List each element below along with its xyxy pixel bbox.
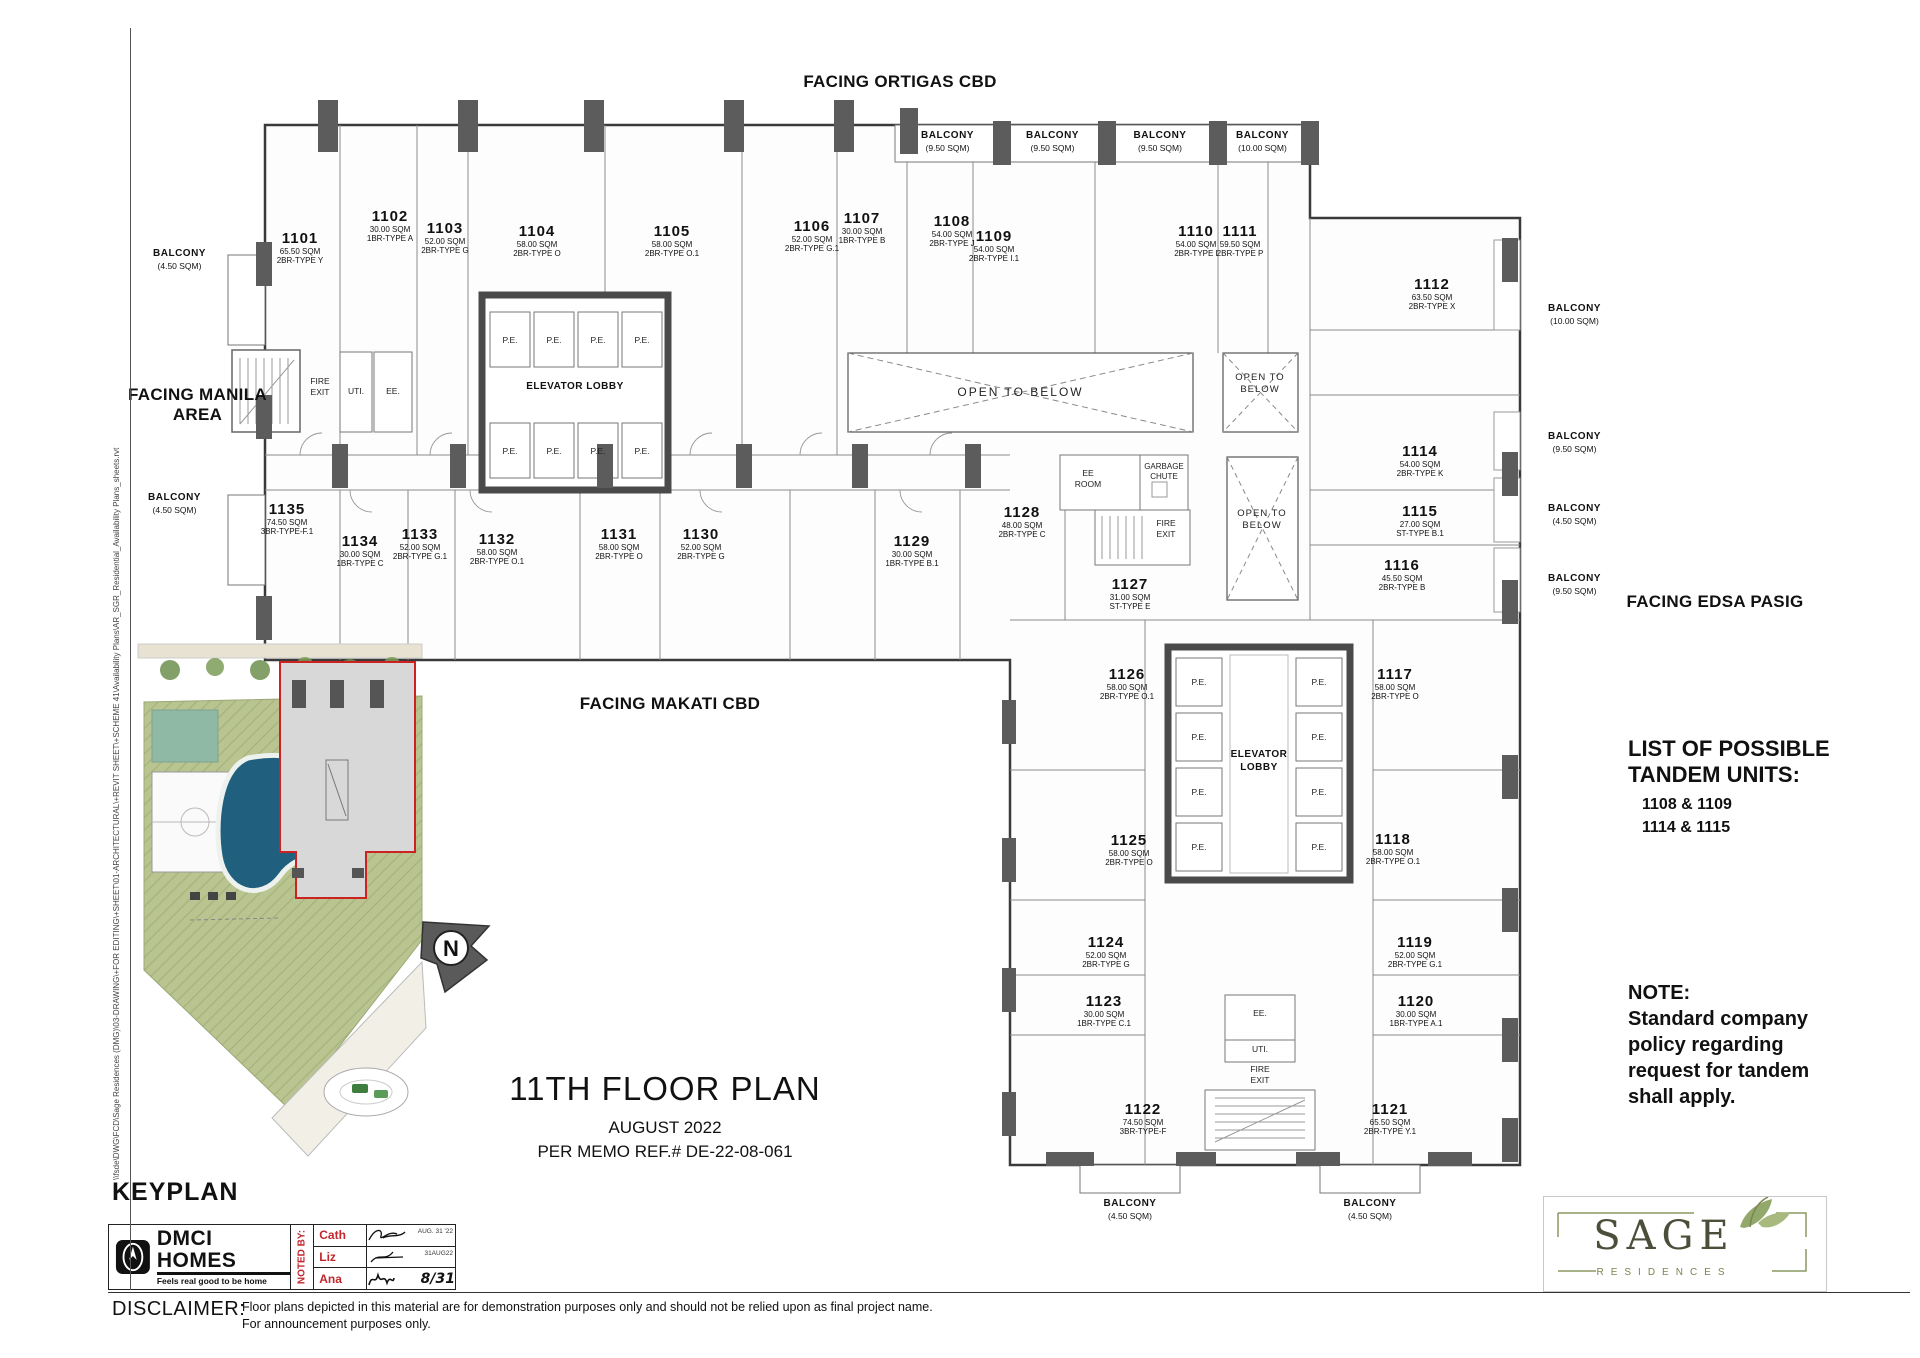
column-block [584,100,604,152]
dmci-wordmark: DMCI HOMES [157,1228,290,1275]
column-block [834,100,854,152]
unit-label-1126: 112658.00 SQM2BR-TYPE O.1 [1084,666,1170,702]
balcony-label: BALCONY(4.50 SQM) [1080,1198,1180,1221]
signature-icon [367,1226,407,1244]
sheet-border-line [130,28,131,1290]
unit-label-1116: 111645.50 SQM2BR-TYPE B [1359,557,1445,593]
open-to-below-label: OPEN TO BELOW [878,385,1163,399]
column-block [318,100,338,152]
facing-edsa-label: FACING EDSA PASIG [1600,592,1830,612]
balcony-label: BALCONY(4.50 SQM) [132,248,227,271]
column-block [965,444,981,488]
unit-label-1132: 113258.00 SQM2BR-TYPE O.1 [454,531,540,567]
balcony-label: BALCONY(10.00 SQM) [1527,303,1622,326]
column-block [1296,1152,1340,1166]
unit-label-1118: 111858.00 SQM2BR-TYPE O.1 [1350,831,1436,867]
uti-label: UTI. [1228,1044,1292,1055]
pe-cell-label: P.E. [1296,768,1342,816]
column-block [1502,1118,1518,1162]
tandem-units-list: LIST OF POSSIBLE TANDEM UNITS: 1108 & 11… [1628,736,1830,839]
balcony-label: BALCONY(9.50 SQM) [895,130,1000,153]
balcony-label: BALCONY(4.50 SQM) [1320,1198,1420,1221]
pe-cell-label: P.E. [578,312,618,367]
unit-label-1112: 111263.50 SQM2BR-TYPE X [1389,276,1475,312]
memo-ref: PER MEMO REF.# DE-22-08-061 [430,1142,900,1162]
column-block [1176,1152,1216,1166]
unit-label-1114: 111454.00 SQM2BR-TYPE K [1377,443,1463,479]
sage-logo: SAGE RESIDENCES [1543,1196,1827,1292]
open-to-below-label: OPEN TO BELOW [1232,508,1292,533]
column-block [1002,700,1016,744]
file-path-text: \\fsde\DWG\FCD\Sage Residences (DMG)\03-… [112,448,121,1180]
page-title: 11TH FLOOR PLAN [430,1070,900,1108]
note-block: NOTE: Standard company policy regarding … [1628,980,1809,1110]
column-block [1502,580,1518,624]
sage-wordmark: SAGE [1544,1213,1784,1259]
pe-cell-label: P.E. [1176,823,1222,871]
unit-label-1107: 110730.00 SQM1BR-TYPE B [819,210,905,246]
fire-exit-label: FIRE EXIT [1240,1064,1280,1085]
plan-date: AUGUST 2022 [430,1118,900,1138]
unit-label-1135: 113574.50 SQM3BR-TYPE-F.1 [244,501,330,537]
balcony-label: BALCONY(9.50 SQM) [1105,130,1215,153]
elevator-lobby-label: ELEVATOR LOBBY [500,380,650,393]
uti-label: UTI. [338,386,374,397]
unit-label-1109: 110954.00 SQM2BR-TYPE I.1 [951,228,1037,264]
column-block [1502,452,1518,496]
unit-label-1125: 112558.00 SQM2BR-TYPE O [1086,832,1172,868]
unit-label-1105: 110558.00 SQM2BR-TYPE O.1 [629,223,715,259]
signature-row: AUG. 31 '22 [367,1225,455,1247]
unit-label-1117: 111758.00 SQM2BR-TYPE O [1352,666,1438,702]
column-block [724,100,744,152]
noted-by-signatures: AUG. 31 '22 31AUG22 8/31 [367,1225,455,1289]
column-block [332,444,348,488]
disclaimer-text: Floor plans depicted in this material ar… [242,1299,1222,1333]
column-block [1046,1152,1094,1166]
dmci-logo-icon [115,1238,151,1276]
unit-label-1122: 112274.50 SQM3BR-TYPE-F [1100,1101,1186,1137]
column-block [1002,1092,1016,1136]
garbage-chute-label: GARBAGE CHUTE [1134,462,1194,482]
unit-label-1104: 110458.00 SQM2BR-TYPE O [494,223,580,259]
noted-by-names: Cath Liz Ana [314,1225,366,1289]
pe-cell-label: P.E. [534,312,574,367]
column-block [1502,888,1518,932]
unit-label-1121: 112165.50 SQM2BR-TYPE Y.1 [1347,1101,1433,1137]
ee-label: EE. [1228,1008,1292,1019]
column-block [1002,968,1016,1012]
unit-label-1120: 112030.00 SQM1BR-TYPE A.1 [1373,993,1459,1029]
facing-manila-label: FACING MANILAAREA [110,385,285,425]
fire-exit-label: FIRE EXIT [1146,518,1186,539]
balcony-label: BALCONY(9.50 SQM) [1527,431,1622,454]
open-to-below-label: OPEN TO BELOW [1230,372,1290,397]
sage-subtitle: RESIDENCES [1544,1267,1784,1278]
balcony-label: BALCONY(9.50 SQM) [1000,130,1105,153]
pe-cell-label: P.E. [1176,658,1222,706]
balcony-label: BALCONY(10.00 SQM) [1215,130,1310,153]
signature-icon [367,1248,407,1266]
pe-cell-label: P.E. [622,312,662,367]
noted-by-column: NOTED BY: [291,1225,314,1289]
facing-ortigas-label: FACING ORTIGAS CBD [760,72,1040,92]
floor-plan-sheet: 110165.50 SQM2BR-TYPE Y 110230.00 SQM1BR… [0,0,1920,1358]
column-block [1502,1018,1518,1062]
elevator-lobby-label: ELEVATOR LOBBY [1214,748,1304,774]
column-block [1428,1152,1472,1166]
pe-cell-label: P.E. [578,423,618,478]
unit-label-1103: 110352.00 SQM2BR-TYPE G [402,220,488,256]
svg-text:N: N [443,936,459,961]
ee-label: EE. [374,386,412,397]
balcony-label: BALCONY(4.50 SQM) [1527,503,1622,526]
column-block [1502,755,1518,799]
pe-cell-label: P.E. [1176,768,1222,816]
unit-label-1134: 113430.00 SQM1BR-TYPE C [317,533,403,569]
disclaimer-label: DISCLAIMER: [112,1298,245,1321]
keyplan-map [130,640,430,1180]
pe-cell-label: P.E. [1296,658,1342,706]
unit-label-1131: 113158.00 SQM2BR-TYPE O [576,526,662,562]
signature-row: 8/31 [367,1268,455,1289]
unit-label-1128: 112848.00 SQM2BR-TYPE C [979,504,1065,540]
unit-label-1119: 111952.00 SQM2BR-TYPE G.1 [1372,934,1458,970]
ee-room-label: EE ROOM [1068,468,1108,489]
dmci-logo-block: DMCI HOMES Feels real good to be home [109,1225,291,1289]
title-block: 11TH FLOOR PLAN AUGUST 2022 PER MEMO REF… [430,1070,900,1162]
unit-label-1111: 111159.50 SQM2BR-TYPE P [1197,223,1283,259]
pe-cell-label: P.E. [490,423,530,478]
facing-makati-label: FACING MAKATI CBD [545,694,795,714]
pe-cell-label: P.E. [622,423,662,478]
pe-cell-label: P.E. [534,423,574,478]
unit-label-1129: 112930.00 SQM1BR-TYPE B.1 [869,533,955,569]
pe-cell-label: P.E. [1296,713,1342,761]
unit-label-1123: 112330.00 SQM1BR-TYPE C.1 [1061,993,1147,1029]
unit-label-1124: 112452.00 SQM2BR-TYPE G [1063,934,1149,970]
column-block [736,444,752,488]
unit-label-1101: 110165.50 SQM2BR-TYPE Y [257,230,343,266]
divider [108,1292,1910,1293]
balcony-label: BALCONY(4.50 SQM) [127,492,222,515]
fire-exit-label: FIRE EXIT [300,376,340,397]
pe-cell-label: P.E. [1176,713,1222,761]
column-block [450,444,466,488]
signature-table: DMCI HOMES Feels real good to be home NO… [108,1224,456,1290]
north-arrow-icon: N [415,912,499,996]
signature-icon [367,1270,395,1288]
unit-label-1127: 112731.00 SQMST-TYPE E [1087,576,1173,612]
pe-cell-label: P.E. [1296,823,1342,871]
unit-label-1130: 113052.00 SQM2BR-TYPE G [658,526,744,562]
column-block [458,100,478,152]
column-block [852,444,868,488]
pe-cell-label: P.E. [490,312,530,367]
dmci-tagline: Feels real good to be home [157,1276,290,1286]
column-block [256,596,272,640]
column-block [1502,238,1518,282]
signature-row: 31AUG22 [367,1247,455,1269]
unit-label-1115: 111527.00 SQMST-TYPE B.1 [1377,503,1463,539]
column-block [1002,838,1016,882]
